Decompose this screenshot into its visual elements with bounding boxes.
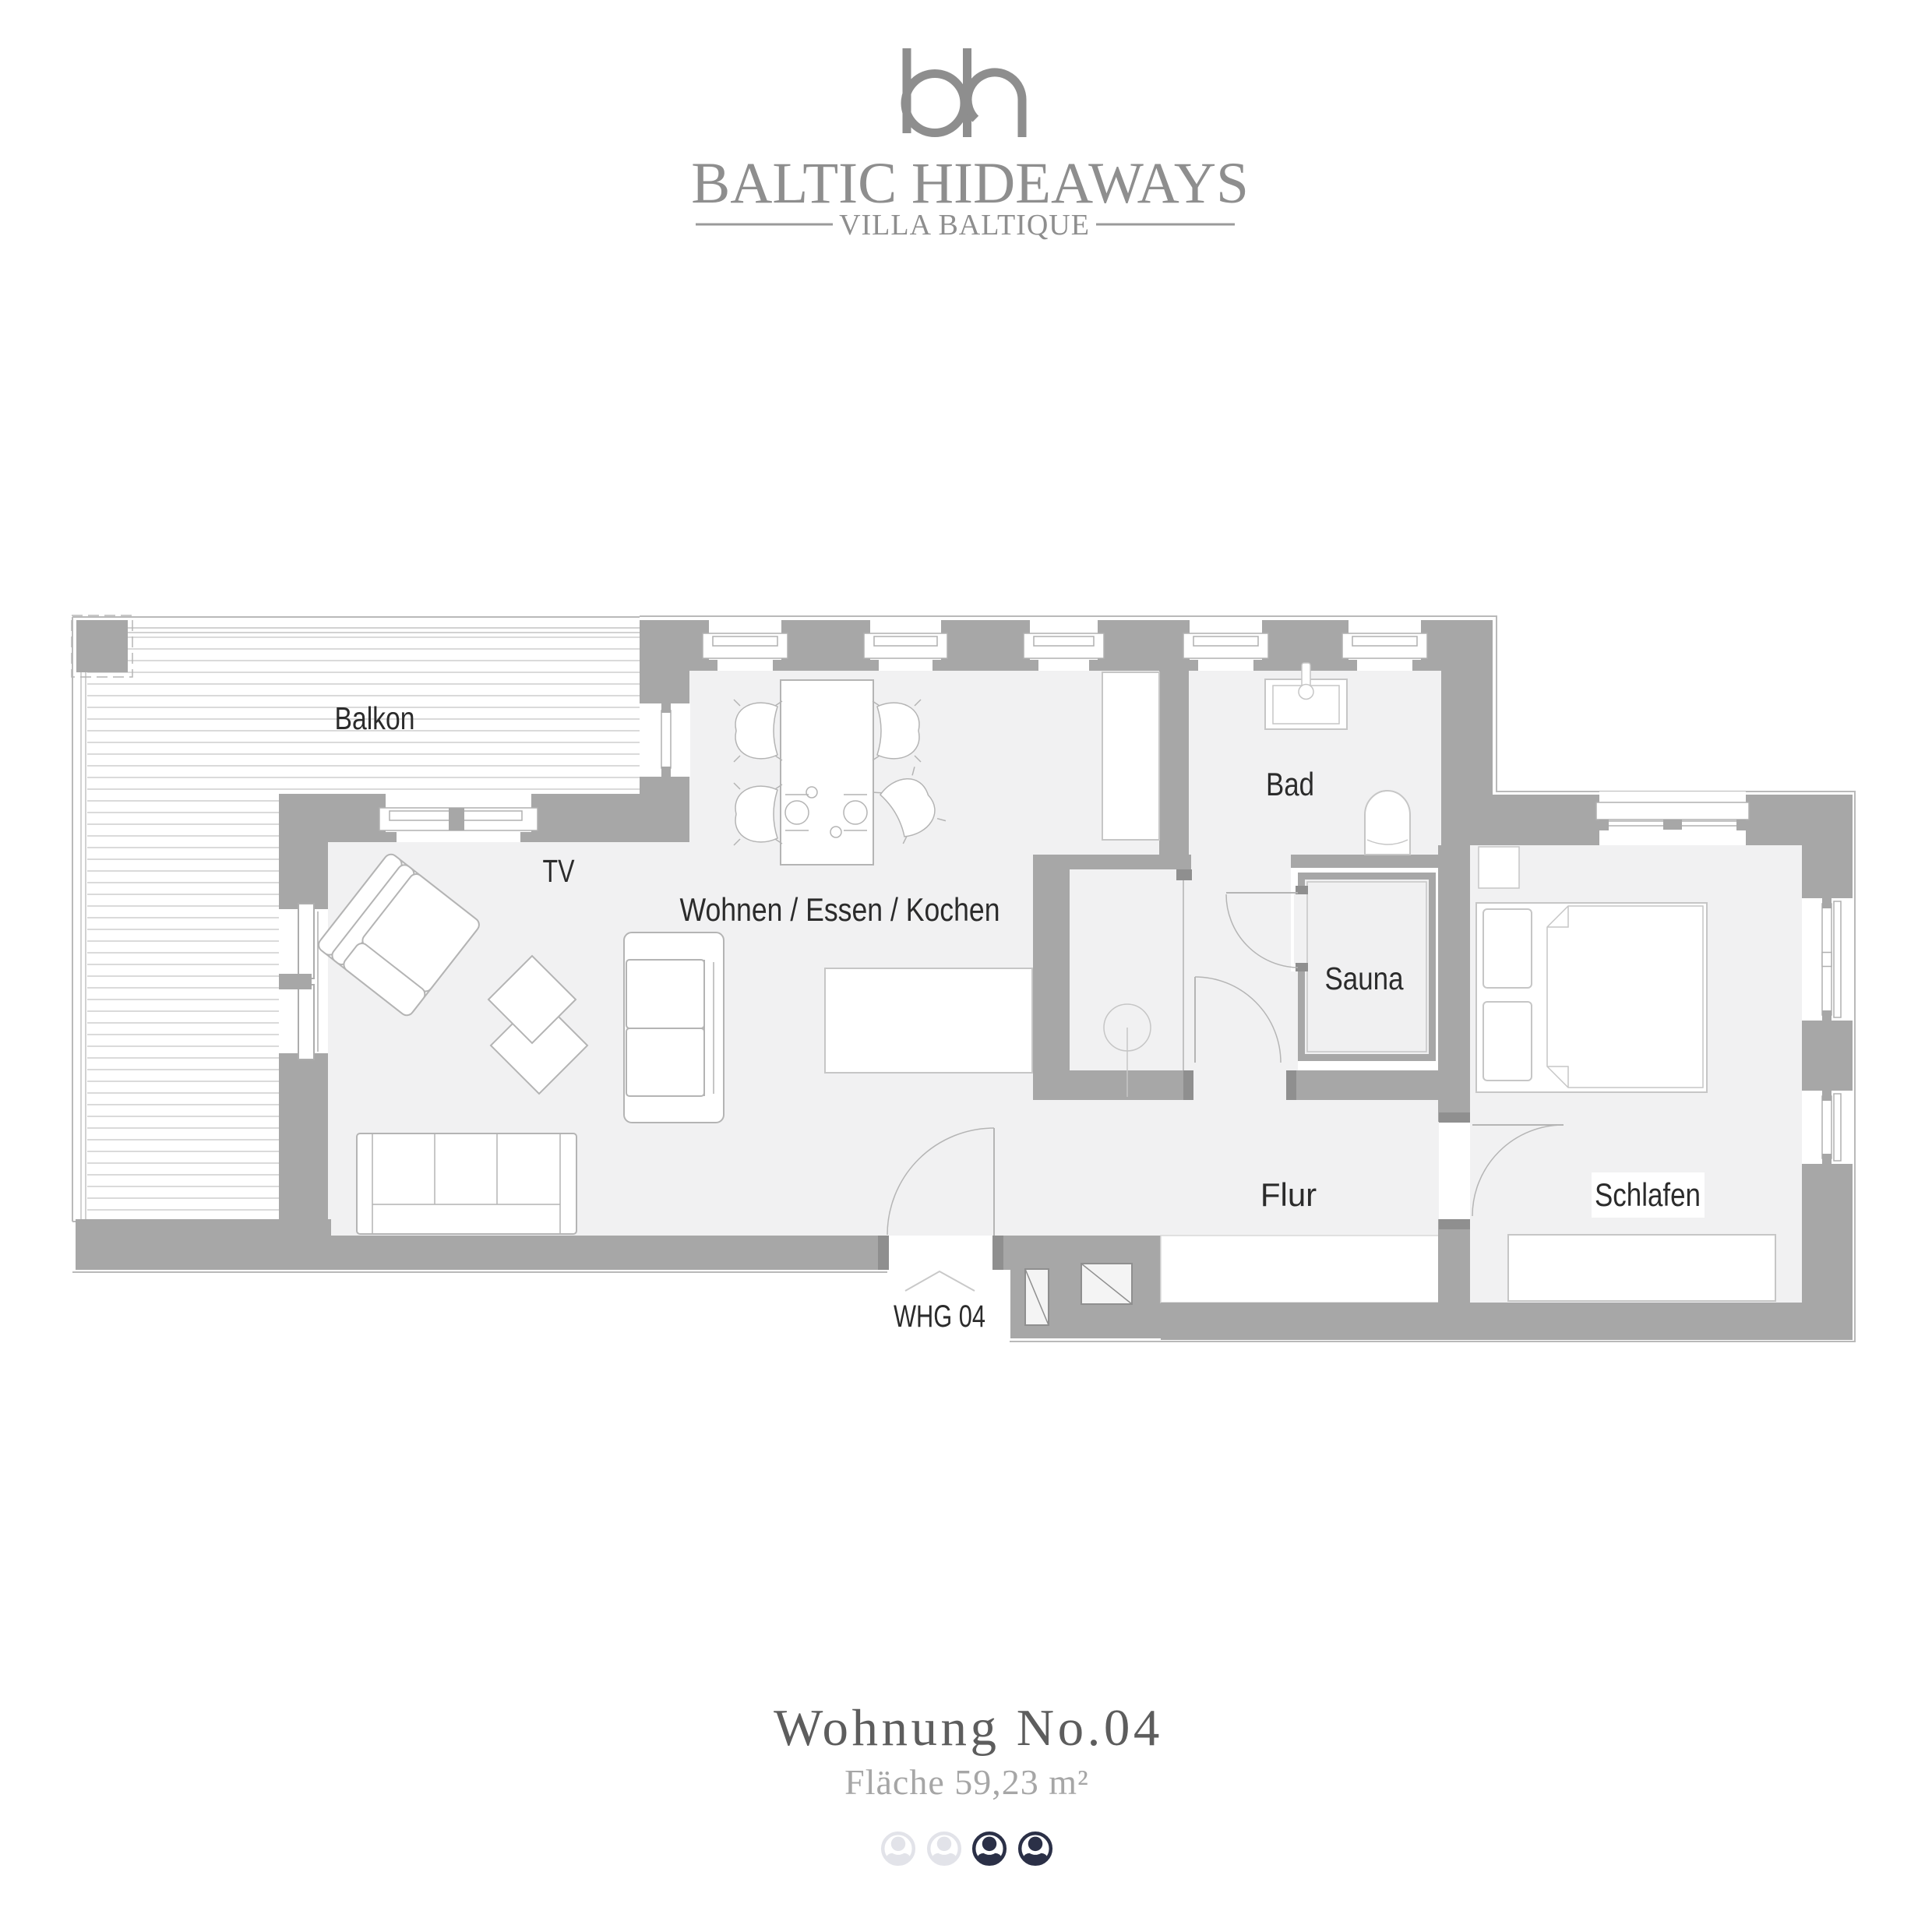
svg-text:Fläche 59,23 m²: Fläche 59,23 m²: [844, 1762, 1089, 1802]
svg-text:BALTIC HIDEAWAYS: BALTIC HIDEAWAYS: [691, 151, 1249, 216]
svg-text:Flur: Flur: [1260, 1176, 1317, 1213]
svg-text:Sauna: Sauna: [1325, 961, 1404, 996]
svg-text:Wohnen / Essen / Kochen: Wohnen / Essen / Kochen: [680, 891, 1000, 928]
svg-text:Schlafen: Schlafen: [1595, 1176, 1701, 1213]
svg-text:Balkon: Balkon: [335, 700, 415, 736]
svg-text:Wohnung No.04: Wohnung No.04: [774, 1699, 1163, 1757]
svg-text:TV: TV: [543, 853, 575, 889]
svg-text:WHG 04: WHG 04: [894, 1299, 985, 1334]
svg-text:VILLA BALTIQUE: VILLA BALTIQUE: [839, 209, 1090, 241]
svg-text:Bad: Bad: [1266, 766, 1314, 802]
